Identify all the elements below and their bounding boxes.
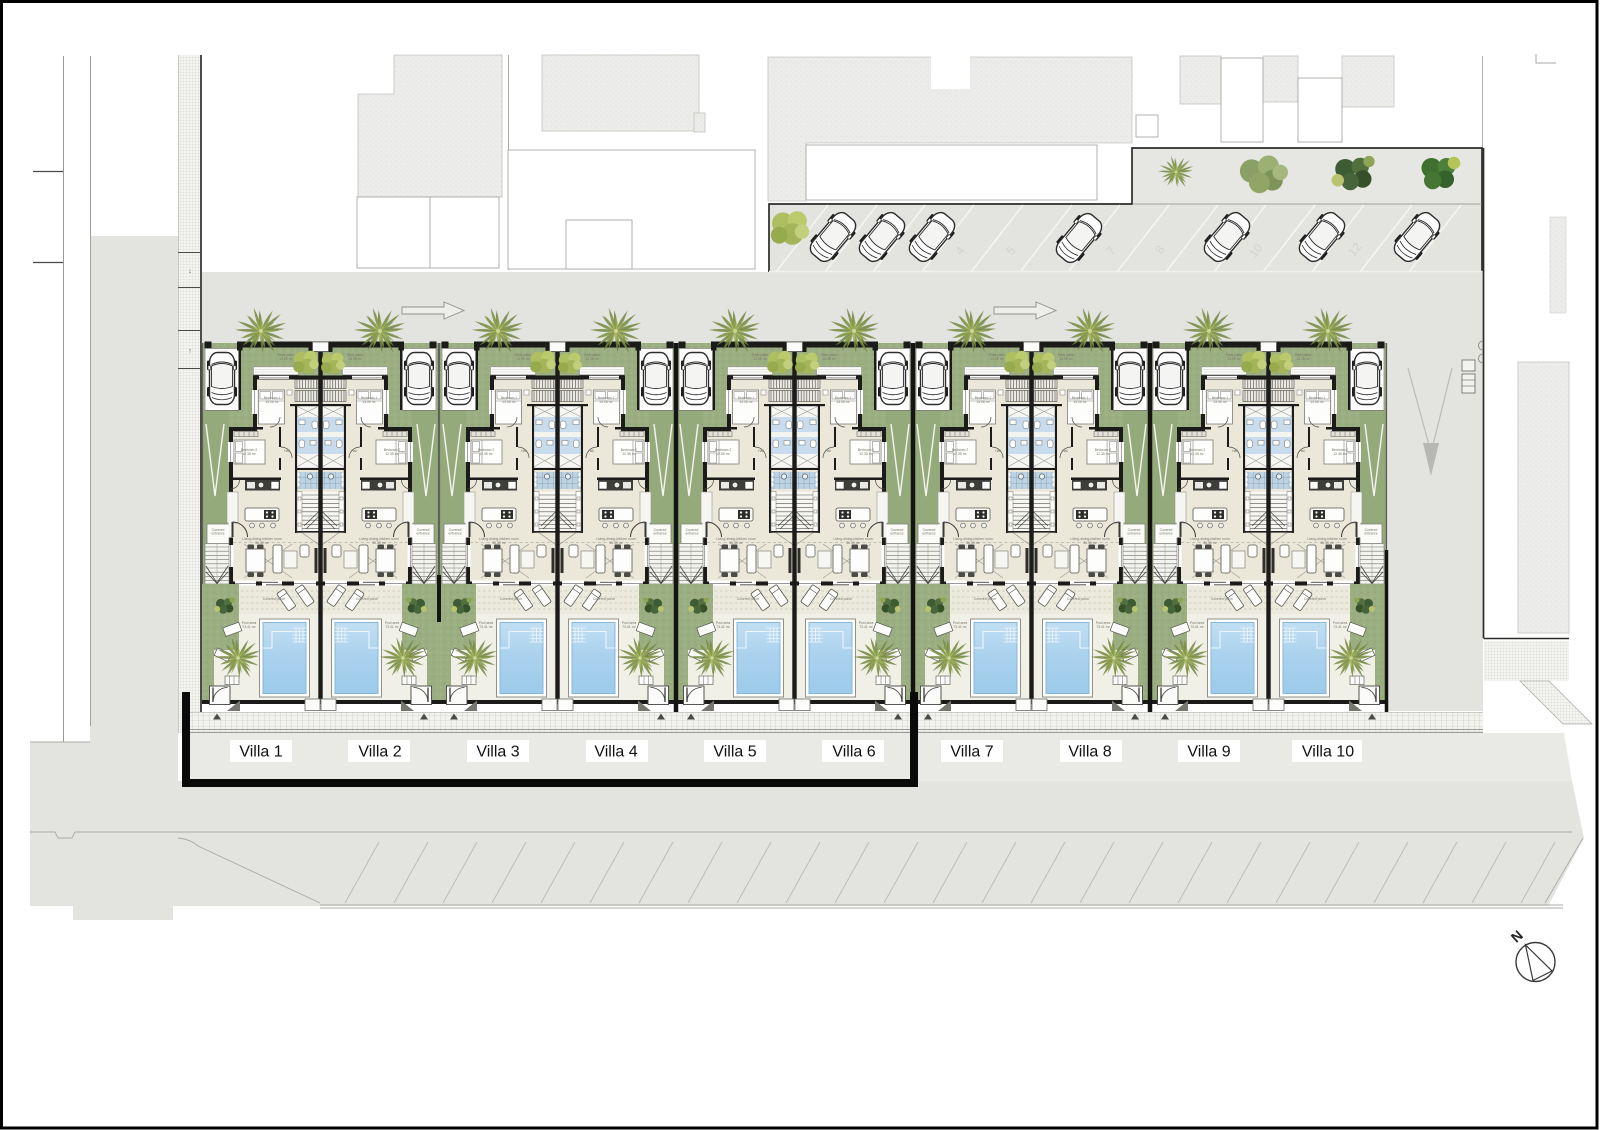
svg-text:Villa 3: Villa 3 [476,744,519,761]
svg-text:Villa 6: Villa 6 [832,744,875,761]
svg-text:Villa 7: Villa 7 [950,744,993,761]
svg-text:Villa 8: Villa 8 [1068,744,1111,761]
svg-text:Villa 1: Villa 1 [239,744,282,761]
svg-text:↓: ↓ [188,268,192,275]
svg-text:Villa 2: Villa 2 [358,744,401,761]
svg-text:Villa 5: Villa 5 [713,744,756,761]
svg-text:Villa 10: Villa 10 [1302,744,1354,761]
svg-text:↑: ↑ [188,348,192,355]
svg-text:Villa 4: Villa 4 [594,744,637,761]
svg-text:Villa 9: Villa 9 [1187,744,1230,761]
